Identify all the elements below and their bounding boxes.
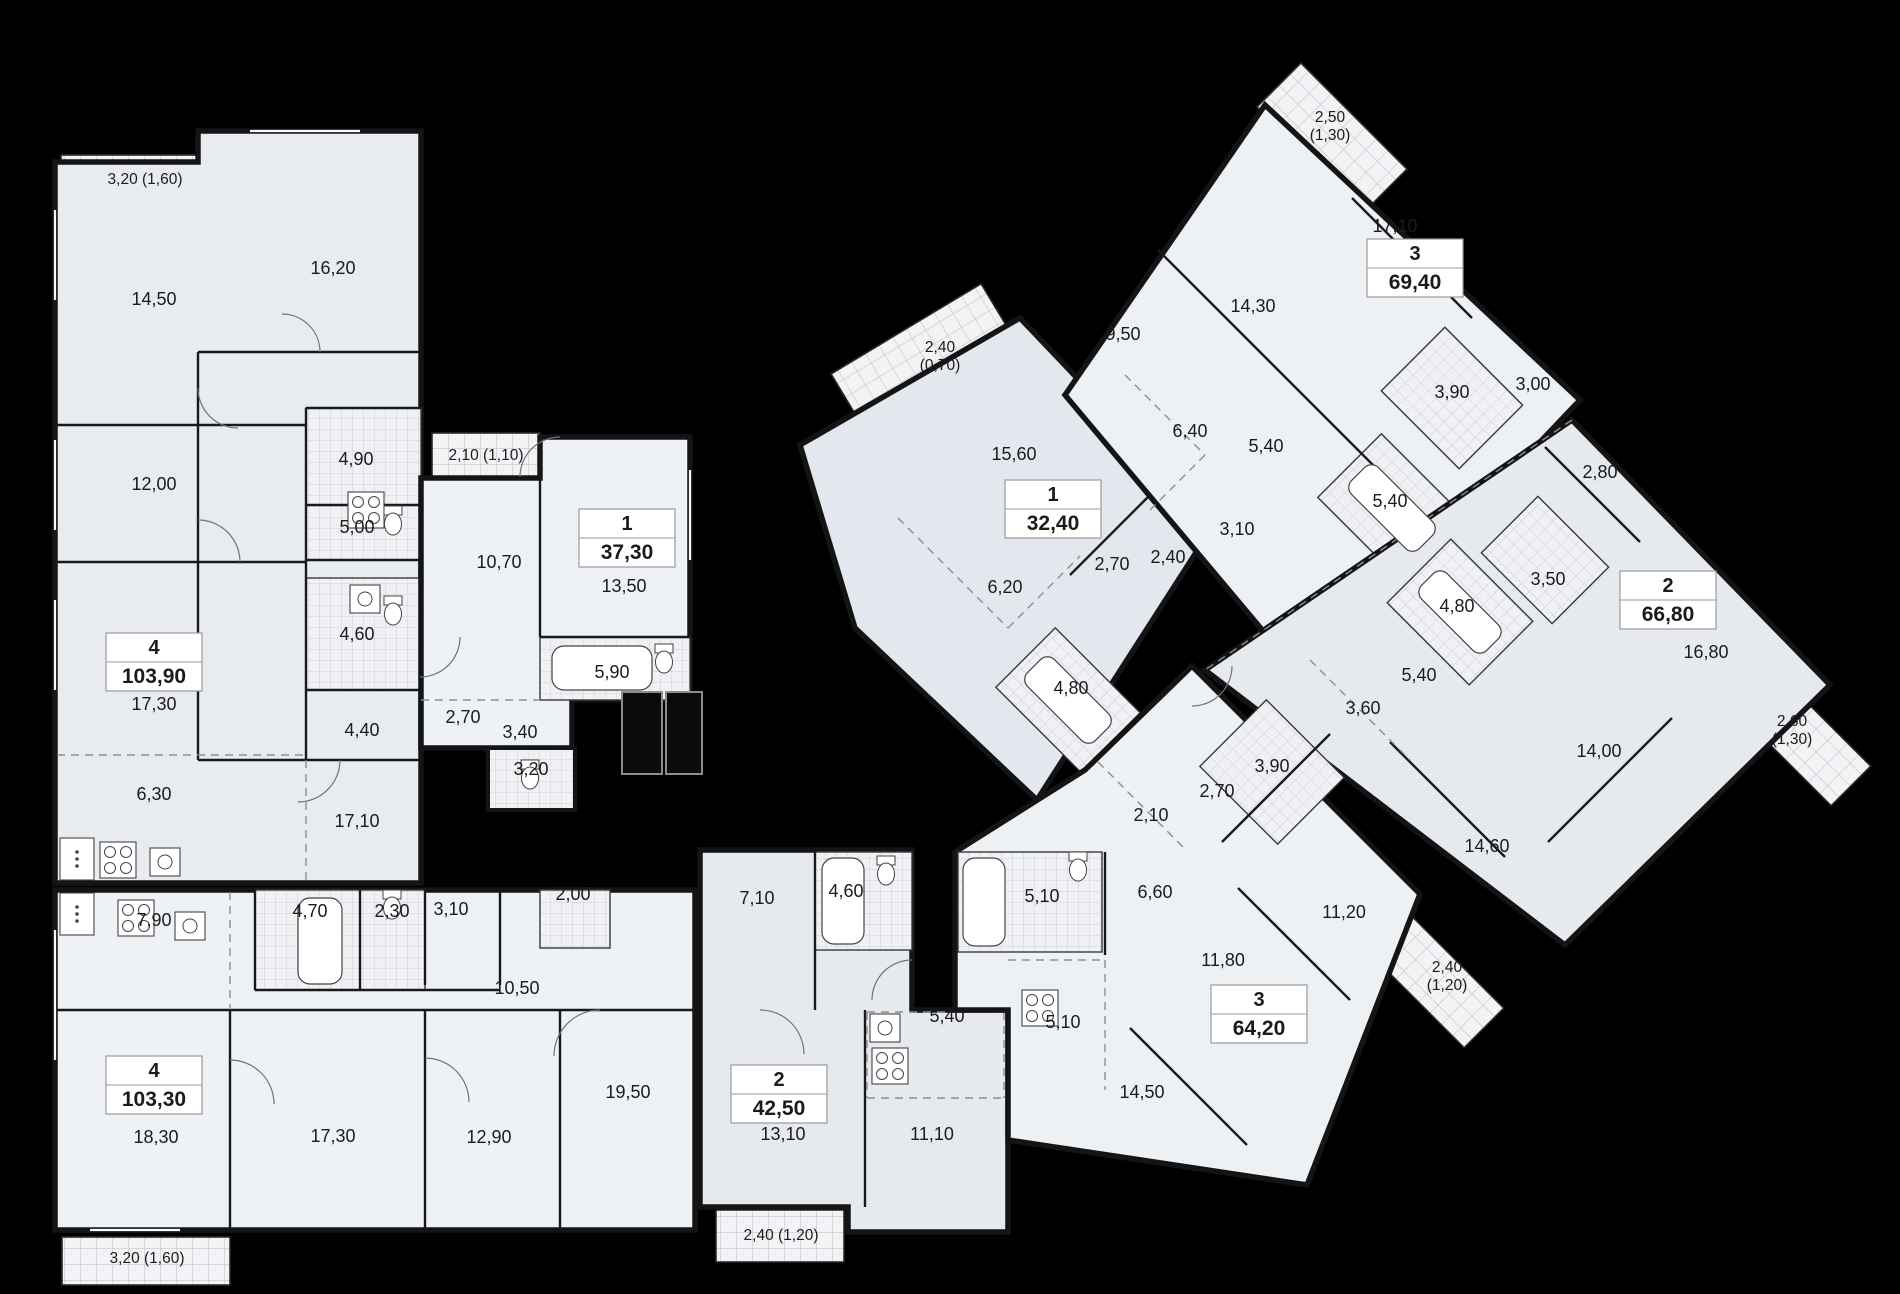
room-label: 3,10 — [433, 899, 468, 919]
room-label: 14,60 — [1464, 836, 1509, 856]
room-label: 3,20 — [513, 759, 548, 779]
balcony-label: 3,20 (1,60) — [108, 171, 183, 188]
room-label: 6,60 — [1137, 882, 1172, 902]
room-label: 10,70 — [476, 552, 521, 572]
room-label: 9,50 — [1105, 324, 1140, 344]
sink-icon — [350, 585, 380, 613]
apartment-badge[interactable]: 132,40 — [1005, 480, 1101, 538]
apartment-area: 69,40 — [1389, 271, 1442, 294]
bathtub-icon — [822, 858, 864, 944]
apartment-number: 3 — [1409, 243, 1420, 265]
room-label: 14,50 — [1119, 1082, 1164, 1102]
sink-icon — [175, 912, 205, 940]
room-label: 11,10 — [910, 1124, 954, 1144]
balcony-label: 2,40(1,20) — [1427, 959, 1468, 994]
apartment-badge[interactable]: 137,30 — [579, 509, 675, 567]
room-label: 13,10 — [760, 1124, 805, 1144]
room-label: 18,30 — [133, 1127, 178, 1147]
room-label: 16,80 — [1683, 642, 1728, 662]
apartment-area: 103,30 — [122, 1088, 186, 1111]
bathtub-icon — [963, 858, 1005, 946]
room-label: 4,60 — [828, 881, 863, 901]
room-label: 3,90 — [1434, 382, 1469, 402]
room-label: 2,40 — [1150, 547, 1185, 567]
room-label: 4,80 — [1053, 678, 1088, 698]
room-label: 3,40 — [502, 722, 537, 742]
room-label: 3,90 — [1254, 756, 1289, 776]
room-label: 6,20 — [987, 577, 1022, 597]
room-label: 4,70 — [292, 901, 327, 921]
room-label: 11,20 — [1322, 902, 1366, 922]
room-label: 3,10 — [1219, 519, 1254, 539]
room-label: 4,90 — [338, 449, 373, 469]
room-label: 19,50 — [605, 1082, 650, 1102]
room-label: 3,00 — [1515, 374, 1550, 394]
apartment-badge[interactable]: 242,50 — [731, 1065, 827, 1123]
apartment-number: 1 — [1047, 484, 1058, 506]
floor-plan-stage: 14,5016,2012,004,905,004,6017,304,406,30… — [0, 0, 1900, 1294]
balcony-label: 3,20 (1,60) — [110, 1250, 185, 1267]
sink-icon — [150, 848, 180, 876]
elevator-shaft — [666, 692, 702, 774]
apartment-number: 4 — [148, 637, 160, 659]
room-label: 4,60 — [339, 624, 374, 644]
fridge-icon — [60, 893, 94, 935]
room-label: 12,00 — [131, 474, 176, 494]
room-label: 5,40 — [1401, 665, 1436, 685]
apartment-number: 2 — [1662, 575, 1673, 597]
room-label: 3,50 — [1530, 569, 1565, 589]
apartment-area: 32,40 — [1027, 512, 1080, 535]
apartment-area: 103,90 — [122, 665, 186, 688]
balcony-label: 2,40(0,70) — [920, 339, 961, 374]
room-label: 3,60 — [1345, 698, 1380, 718]
room-label: 2,70 — [1094, 554, 1129, 574]
room-label: 5,00 — [339, 517, 374, 537]
room-label: 2,10 — [1133, 805, 1168, 825]
room-label: 6,30 — [136, 784, 171, 804]
room-label: 4,40 — [344, 720, 379, 740]
apartment-area: 42,50 — [753, 1097, 806, 1120]
room-label: 5,40 — [1248, 436, 1283, 456]
apartment-badge[interactable]: 4103,30 — [106, 1056, 202, 1114]
apartment-number: 4 — [148, 1060, 160, 1082]
toilet-icon — [655, 644, 673, 673]
balcony-label: 2,60(1,30) — [1772, 713, 1813, 748]
apartment-badge[interactable]: 4103,90 — [106, 633, 202, 691]
room-label: 17,10 — [1372, 216, 1417, 236]
balcony-label: 2,50(1,30) — [1310, 109, 1351, 144]
room-label: 13,50 — [601, 576, 646, 596]
room-label: 11,80 — [1201, 950, 1245, 970]
apartment-number: 1 — [621, 513, 632, 535]
room-label: 17,30 — [310, 1126, 355, 1146]
room-label: 2,00 — [555, 884, 590, 904]
room-label: 5,10 — [1024, 886, 1059, 906]
apartment-number: 2 — [773, 1069, 784, 1091]
toilet-icon — [877, 856, 895, 885]
fridge-icon — [60, 838, 94, 880]
room-label: 17,10 — [334, 811, 379, 831]
room-label: 17,30 — [131, 694, 176, 714]
apartment-badge[interactable]: 369,40 — [1367, 239, 1463, 297]
room-label: 6,40 — [1172, 421, 1207, 441]
balcony-label: 2,40 (1,20) — [744, 1227, 819, 1244]
room-label: 7,10 — [739, 888, 774, 908]
room-label: 5,40 — [1372, 491, 1407, 511]
apartment-area: 66,80 — [1642, 603, 1695, 626]
room-label: 7,90 — [136, 910, 171, 930]
sink-icon — [870, 1014, 900, 1042]
stove-icon — [100, 842, 136, 878]
apartment-badge[interactable]: 266,80 — [1620, 571, 1716, 629]
balcony-label: 2,10 (1,10) — [449, 447, 524, 464]
room-label: 14,50 — [131, 289, 176, 309]
bathroom-tile — [306, 408, 421, 560]
room-label: 15,60 — [991, 444, 1036, 464]
room-label: 2,70 — [445, 707, 480, 727]
room-label: 14,00 — [1576, 741, 1621, 761]
room-label: 2,80 — [1582, 462, 1617, 482]
toilet-icon — [1069, 852, 1087, 881]
toilet-icon — [384, 506, 402, 535]
room-label: 5,40 — [929, 1006, 964, 1026]
apartment-area: 64,20 — [1233, 1017, 1286, 1040]
room-label: 16,20 — [310, 258, 355, 278]
stove-icon — [872, 1048, 908, 1084]
room-label: 5,10 — [1045, 1012, 1080, 1032]
apartment-badge[interactable]: 364,20 — [1211, 985, 1307, 1043]
room-label: 2,30 — [374, 901, 409, 921]
room-label: 4,80 — [1439, 596, 1474, 616]
apartment-number: 3 — [1253, 989, 1264, 1011]
room-label: 14,30 — [1230, 296, 1275, 316]
toilet-icon — [384, 596, 402, 625]
room-label: 2,70 — [1199, 781, 1234, 801]
room-label: 5,90 — [594, 662, 629, 682]
room-label: 10,50 — [494, 978, 539, 998]
floor-plan: 14,5016,2012,004,905,004,6017,304,406,30… — [0, 0, 1900, 1294]
apartment-area: 37,30 — [601, 541, 654, 564]
elevator-shaft — [622, 692, 662, 774]
room-label: 12,90 — [466, 1127, 511, 1147]
